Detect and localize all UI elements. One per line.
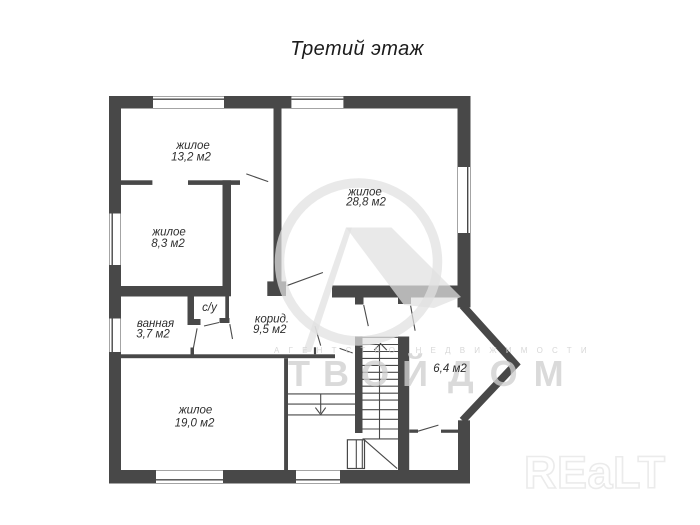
svg-text:жилое: жилое [175, 140, 210, 152]
svg-text:с/у: с/у [202, 302, 218, 314]
svg-text:6,4 м2: 6,4 м2 [433, 363, 467, 375]
svg-text:8,3 м2: 8,3 м2 [151, 238, 185, 250]
svg-text:28,8 м2: 28,8 м2 [345, 197, 386, 209]
svg-text:9,5 м2: 9,5 м2 [253, 324, 287, 336]
svg-text:жилое: жилое [178, 405, 213, 417]
svg-text:жилое: жилое [151, 227, 186, 239]
svg-text:19,0 м2: 19,0 м2 [175, 418, 215, 430]
svg-text:13,2 м2: 13,2 м2 [171, 152, 211, 164]
svg-text:Третий этаж: Третий этаж [290, 38, 424, 60]
svg-text:REaLT: REaLT [524, 447, 666, 498]
svg-text:3,7 м2: 3,7 м2 [136, 329, 170, 341]
